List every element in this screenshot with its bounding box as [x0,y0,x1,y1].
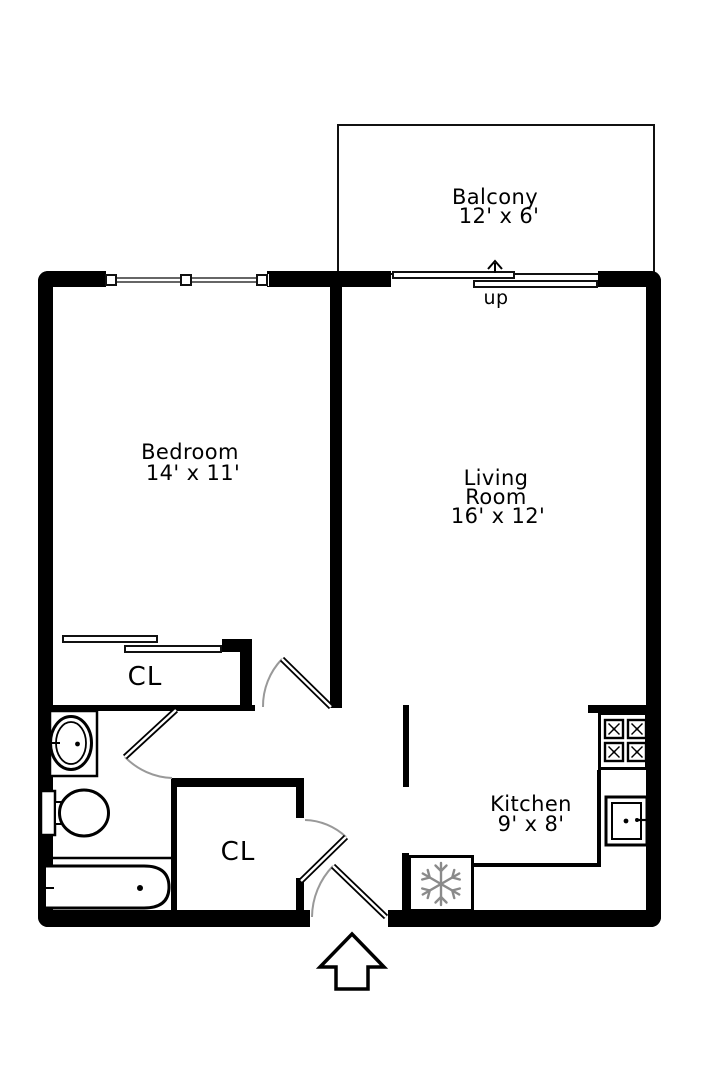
bathtub [44,858,171,908]
bathroom-door [125,710,176,778]
entry-door [312,866,386,917]
floor-plan: Balcony 12' x 6' Bedroom 14' x 11' Livin… [0,0,720,1080]
entrance-arrow-icon [320,934,384,989]
bathroom-sink [46,711,97,776]
bedroom-door [263,659,331,707]
stove-burners [605,720,646,761]
snowflake-icon [420,863,462,905]
toilet [41,790,109,836]
up-arrow-icon [488,261,502,273]
kitchen-sink [606,797,652,845]
fixtures-overlay [0,0,720,1080]
